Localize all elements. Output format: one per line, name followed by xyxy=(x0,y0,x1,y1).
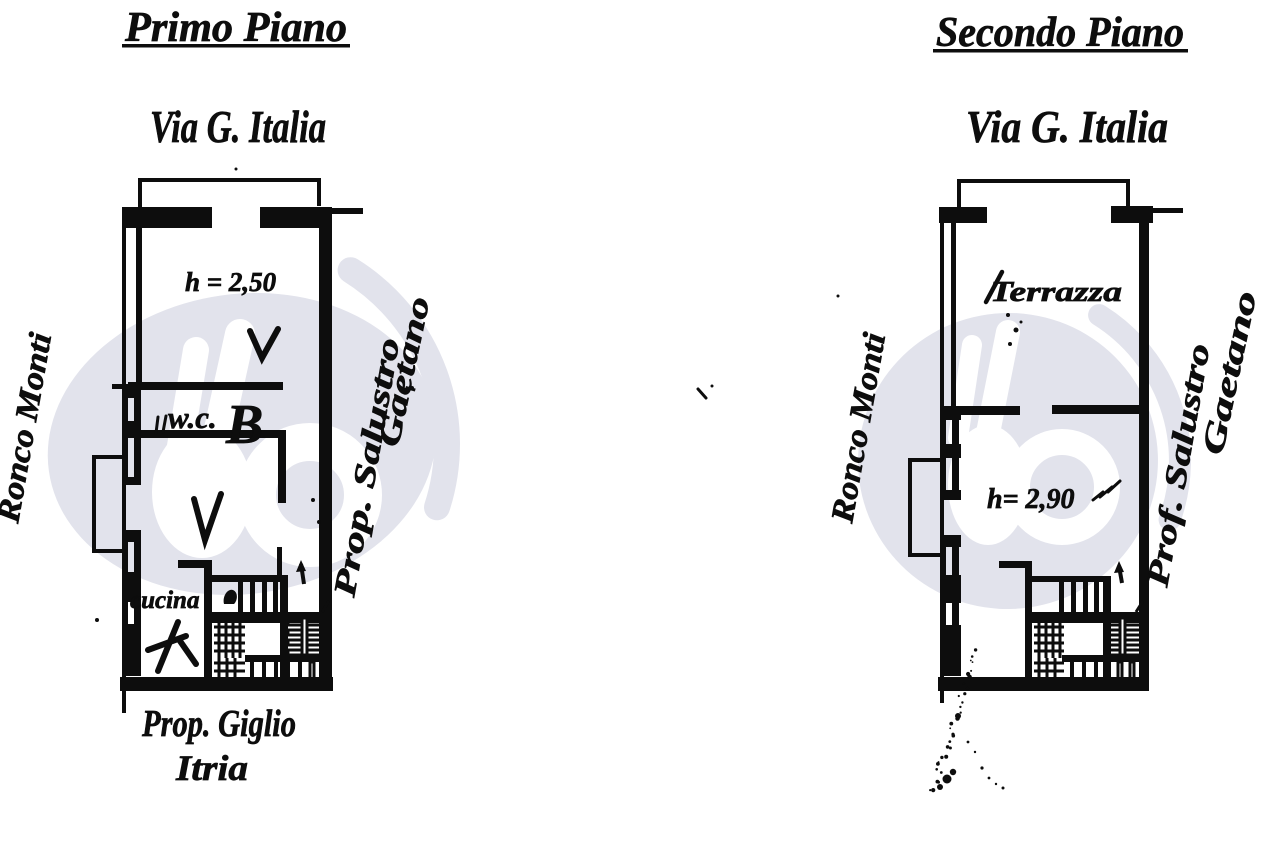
svg-text:Ronco Monti: Ronco Monti xyxy=(0,330,58,527)
svg-text:B: B xyxy=(225,394,263,456)
svg-text:Via G. Italia: Via G. Italia xyxy=(150,101,326,152)
svg-text:w.c.: w.c. xyxy=(168,400,217,435)
svg-text:cucina: cucina xyxy=(130,587,199,614)
svg-text:h = 2,50: h = 2,50 xyxy=(185,267,277,297)
svg-text:h= 2,90: h= 2,90 xyxy=(987,484,1075,515)
svg-text:Prop. Giglio: Prop. Giglio xyxy=(141,703,296,745)
svg-text:Itria: Itria xyxy=(175,748,248,788)
svg-text:Via G. Italia: Via G. Italia xyxy=(966,101,1168,152)
svg-text:Terrazza: Terrazza xyxy=(990,277,1122,308)
